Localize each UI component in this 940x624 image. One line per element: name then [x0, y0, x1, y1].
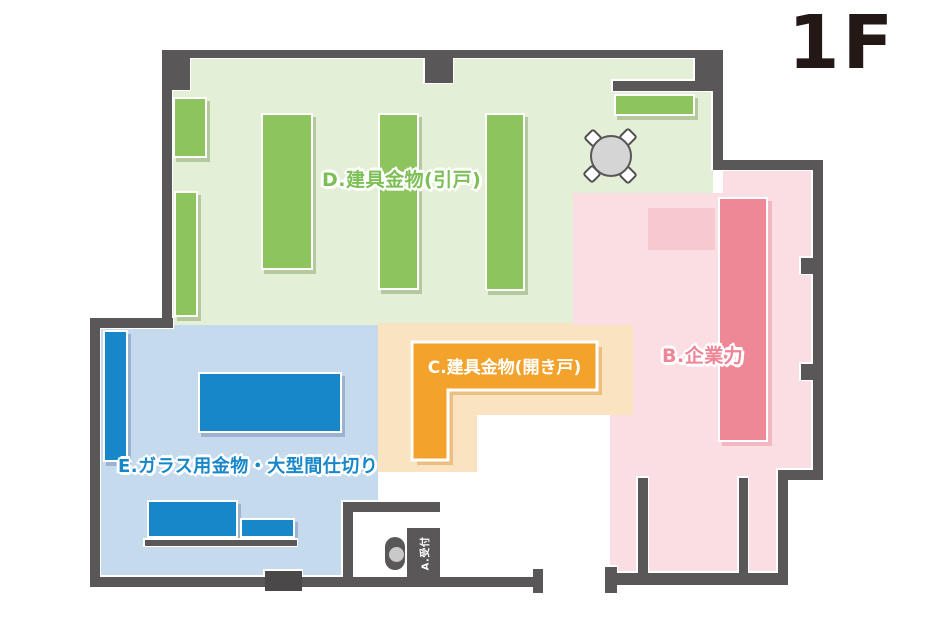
wall-segment [90, 318, 100, 587]
zone-c-label: C.建具金物(開き戸) [412, 353, 597, 378]
display-rack [174, 191, 198, 317]
display-rack [261, 113, 313, 270]
wall-end-cap [533, 569, 543, 593]
person-head-icon [389, 547, 404, 562]
wall-segment [813, 160, 823, 472]
display-rack [147, 500, 238, 538]
wall-segment [343, 502, 353, 587]
zone-b-label: B.企業力 [662, 341, 743, 368]
display-rack [103, 330, 128, 462]
display-rack [173, 97, 207, 158]
reception-desk: A.受付 [407, 528, 440, 578]
wall-segment [162, 50, 172, 328]
display-rack [718, 197, 768, 442]
floor-title: 1F [788, 6, 896, 80]
display-rack [378, 113, 419, 290]
wall-segment [713, 50, 723, 170]
reception-label: A.受付 [416, 536, 431, 570]
display-rack [485, 113, 525, 291]
wall-segment [778, 470, 788, 585]
zone-e-label: E.ガラス用金物・大型間仕切り [118, 452, 378, 478]
wall-segment [713, 160, 823, 170]
zone-d-label: D.建具金物(引戸) [322, 165, 481, 192]
wall-segment [343, 502, 440, 512]
zone-e-area [100, 325, 378, 577]
display-rack [198, 372, 342, 433]
wall-segment [165, 50, 723, 58]
round-table [590, 135, 632, 177]
display-rack [648, 208, 715, 250]
display-rack [614, 94, 695, 116]
floor-plan-1f: A.受付 D.建具金物(引戸) C.建具金物(開き戸) B.企業力 E.ガラス用… [0, 0, 940, 624]
display-rack [240, 518, 295, 538]
wall-segment [90, 577, 543, 587]
